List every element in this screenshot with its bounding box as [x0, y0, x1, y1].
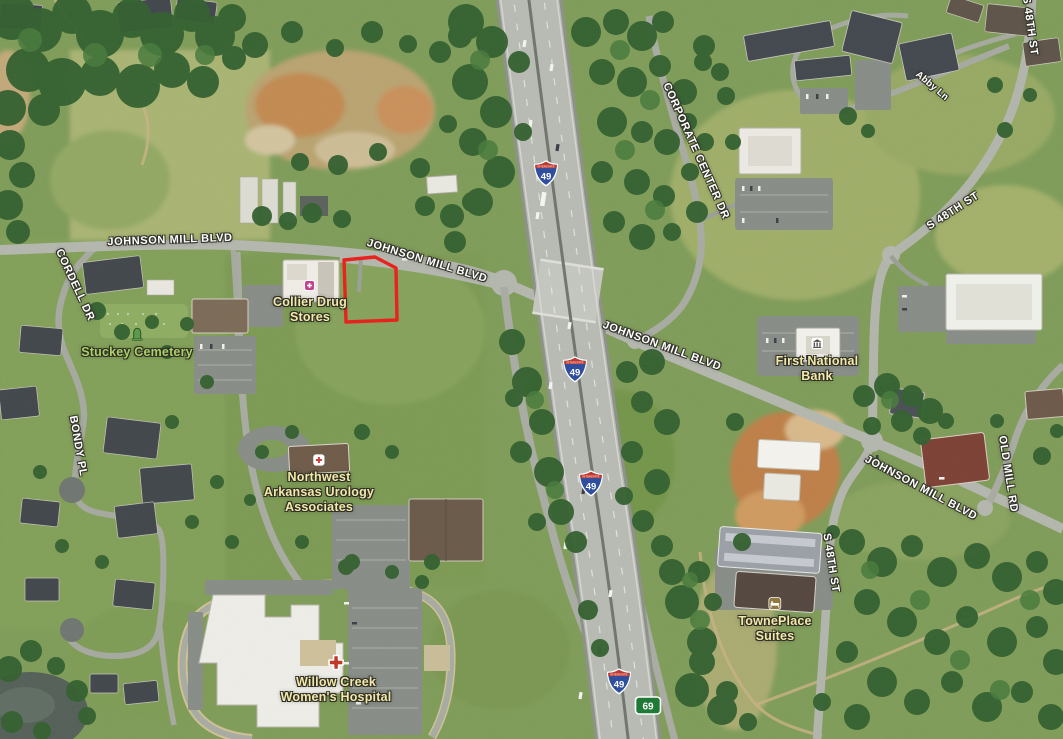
poi-label-line: Stores [290, 310, 330, 324]
shield-number: 49 [586, 482, 597, 493]
poi-first-national-bank: First National Bank [776, 337, 859, 383]
shield-banner: INTERSTATE [567, 361, 584, 365]
cemetery-icon [131, 327, 143, 344]
interstate-49-shield-1: INTERSTATE 49 [533, 160, 559, 193]
interstate-49-shield-4: INTERSTATE 49 [606, 668, 632, 701]
shield-banner: INTERSTATE [611, 673, 628, 677]
shield-number: 49 [541, 172, 552, 183]
poi-label-line: Northwest [288, 470, 351, 484]
pharmacy-icon [305, 280, 316, 294]
poi-label-line: Willow Creek [296, 675, 376, 689]
shield-number: 49 [570, 368, 581, 379]
hospital-cross-icon [327, 654, 344, 674]
poi-label-line: TownePlace [738, 614, 811, 628]
interstate-49-shield-2: INTERSTATE 49 [562, 356, 588, 389]
poi-label-line: Arkansas Urology [264, 485, 374, 499]
poi-northwest-arkansas-urology: Northwest Arkansas Urology Associates [264, 454, 374, 514]
poi-label-line: Stuckey Cemetery [81, 345, 193, 359]
medical-icon [313, 454, 325, 469]
poi-label-line: Collier Drug [273, 295, 347, 309]
interstate-49-shield-3: INTERSTATE 49 [578, 470, 604, 503]
shield-banner: INTERSTATE [538, 165, 555, 169]
poi-label-line: Associates [285, 500, 353, 514]
shield-number: 49 [614, 680, 625, 691]
poi-towneplace-suites: TownePlace Suites [738, 597, 811, 643]
highway-69-shield: 69 [635, 696, 662, 720]
bank-icon [810, 337, 823, 353]
poi-label-line: Suites [756, 629, 795, 643]
poi-label-line: First National [776, 354, 859, 368]
poi-collier-drug-stores: Collier Drug Stores [273, 280, 347, 324]
lodging-icon [768, 597, 781, 613]
shield-banner: INTERSTATE [583, 475, 600, 479]
poi-willow-creek-womens-hospital: Willow Creek Women's Hospital [281, 654, 392, 704]
aerial-imagery [0, 0, 1063, 739]
poi-label-line: Bank [801, 369, 832, 383]
poi-label-line: Women's Hospital [281, 690, 392, 704]
satellite-map[interactable]: JOHNSON MILL BLVD JOHNSON MILL BLVD JOHN… [0, 0, 1063, 739]
poi-stuckey-cemetery: Stuckey Cemetery [81, 327, 193, 359]
shield-number: 69 [642, 702, 654, 713]
